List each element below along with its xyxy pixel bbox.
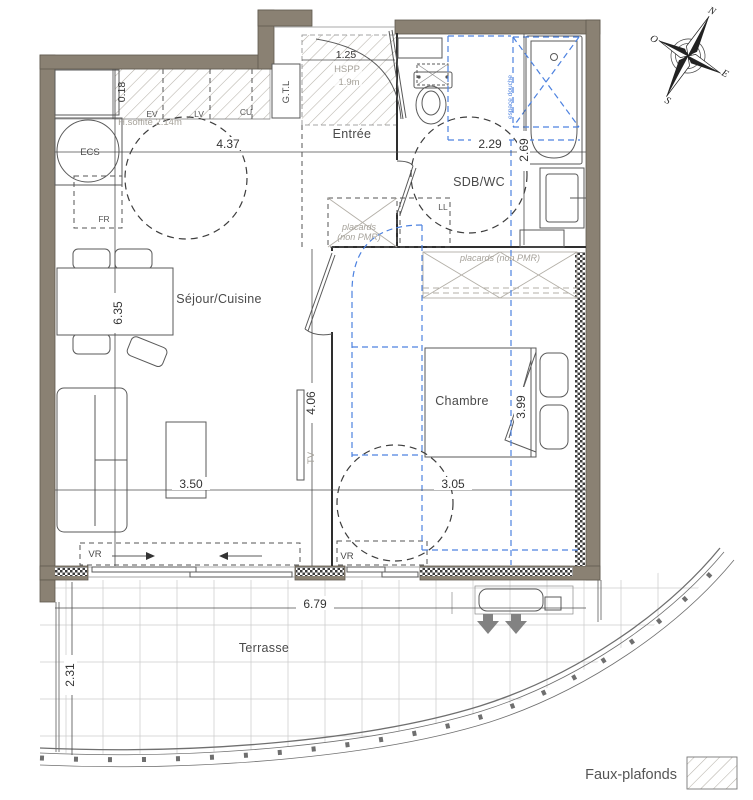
soffite-note: H.soffite 2.14m	[118, 117, 182, 128]
terrace-planter	[452, 586, 573, 614]
terrace: Terrasse	[40, 548, 734, 767]
dim-terrasse-depth: 2.31	[63, 663, 77, 687]
gtl-label: G.T.L	[281, 81, 292, 104]
legend-faux-plafonds: Faux-plafonds	[585, 757, 737, 789]
fridge-label: FR	[98, 214, 109, 224]
chambre-label: Chambre	[435, 394, 489, 408]
down-arrow-icon	[477, 614, 527, 634]
vr-label-living: VR	[88, 549, 101, 560]
dim-terrasse-width: 6.79	[303, 597, 327, 611]
dim-chambre-depth: 3.99	[514, 395, 528, 419]
floor-plan: Terrasse	[0, 0, 753, 800]
washing-machine-label: LL	[438, 202, 448, 212]
sejour-label: Séjour/Cuisine	[176, 292, 262, 306]
dim-entree-width: 1.25	[336, 49, 357, 61]
dim-sejour-width: 4.37	[216, 137, 240, 151]
dim-chambre-width: 3.05	[441, 477, 465, 491]
dim-counter-depth: 0.18	[116, 82, 128, 103]
hspp-height-note: 1.9m	[338, 77, 359, 88]
cooker-label: CU	[240, 107, 252, 117]
dim-sdb-width: 2.29	[478, 137, 502, 151]
compass-rose-icon: N O E S	[625, 0, 753, 125]
dishwasher-label: LV	[194, 109, 204, 119]
hspp-note: HSPP	[334, 64, 360, 75]
tv-label: TV	[306, 451, 317, 464]
compass-north: N	[705, 5, 718, 19]
dim-sdb-depth: 2.69	[517, 138, 531, 162]
floor-plan-drawing: Terrasse	[0, 0, 753, 800]
terrace-railing	[40, 548, 734, 767]
terrasse-label: Terrasse	[239, 641, 289, 655]
dim-sejour-south-height: 4.06	[304, 391, 318, 415]
entry-closet-note-line1: placards	[341, 222, 377, 232]
vr-label-bedroom: VR	[340, 551, 353, 562]
legend-label: Faux-plafonds	[585, 767, 677, 783]
compass-west: O	[648, 33, 660, 46]
compass-east: E	[719, 67, 730, 80]
dim-sejour-height: 6.35	[111, 301, 125, 325]
ecs-label: ECS	[80, 147, 100, 158]
dim-sejour-south-width: 3.50	[179, 477, 203, 491]
entry-closet-note-line2: (non PMR)	[337, 232, 381, 242]
bedroom-closet-note: placards (non PMR)	[459, 253, 540, 263]
shower-space-note: espace douche	[507, 75, 514, 119]
entree-label: Entrée	[333, 127, 372, 141]
compass-south: S	[663, 95, 673, 107]
legend-swatch	[687, 757, 737, 789]
sdb-label: SDB/WC	[453, 175, 505, 189]
